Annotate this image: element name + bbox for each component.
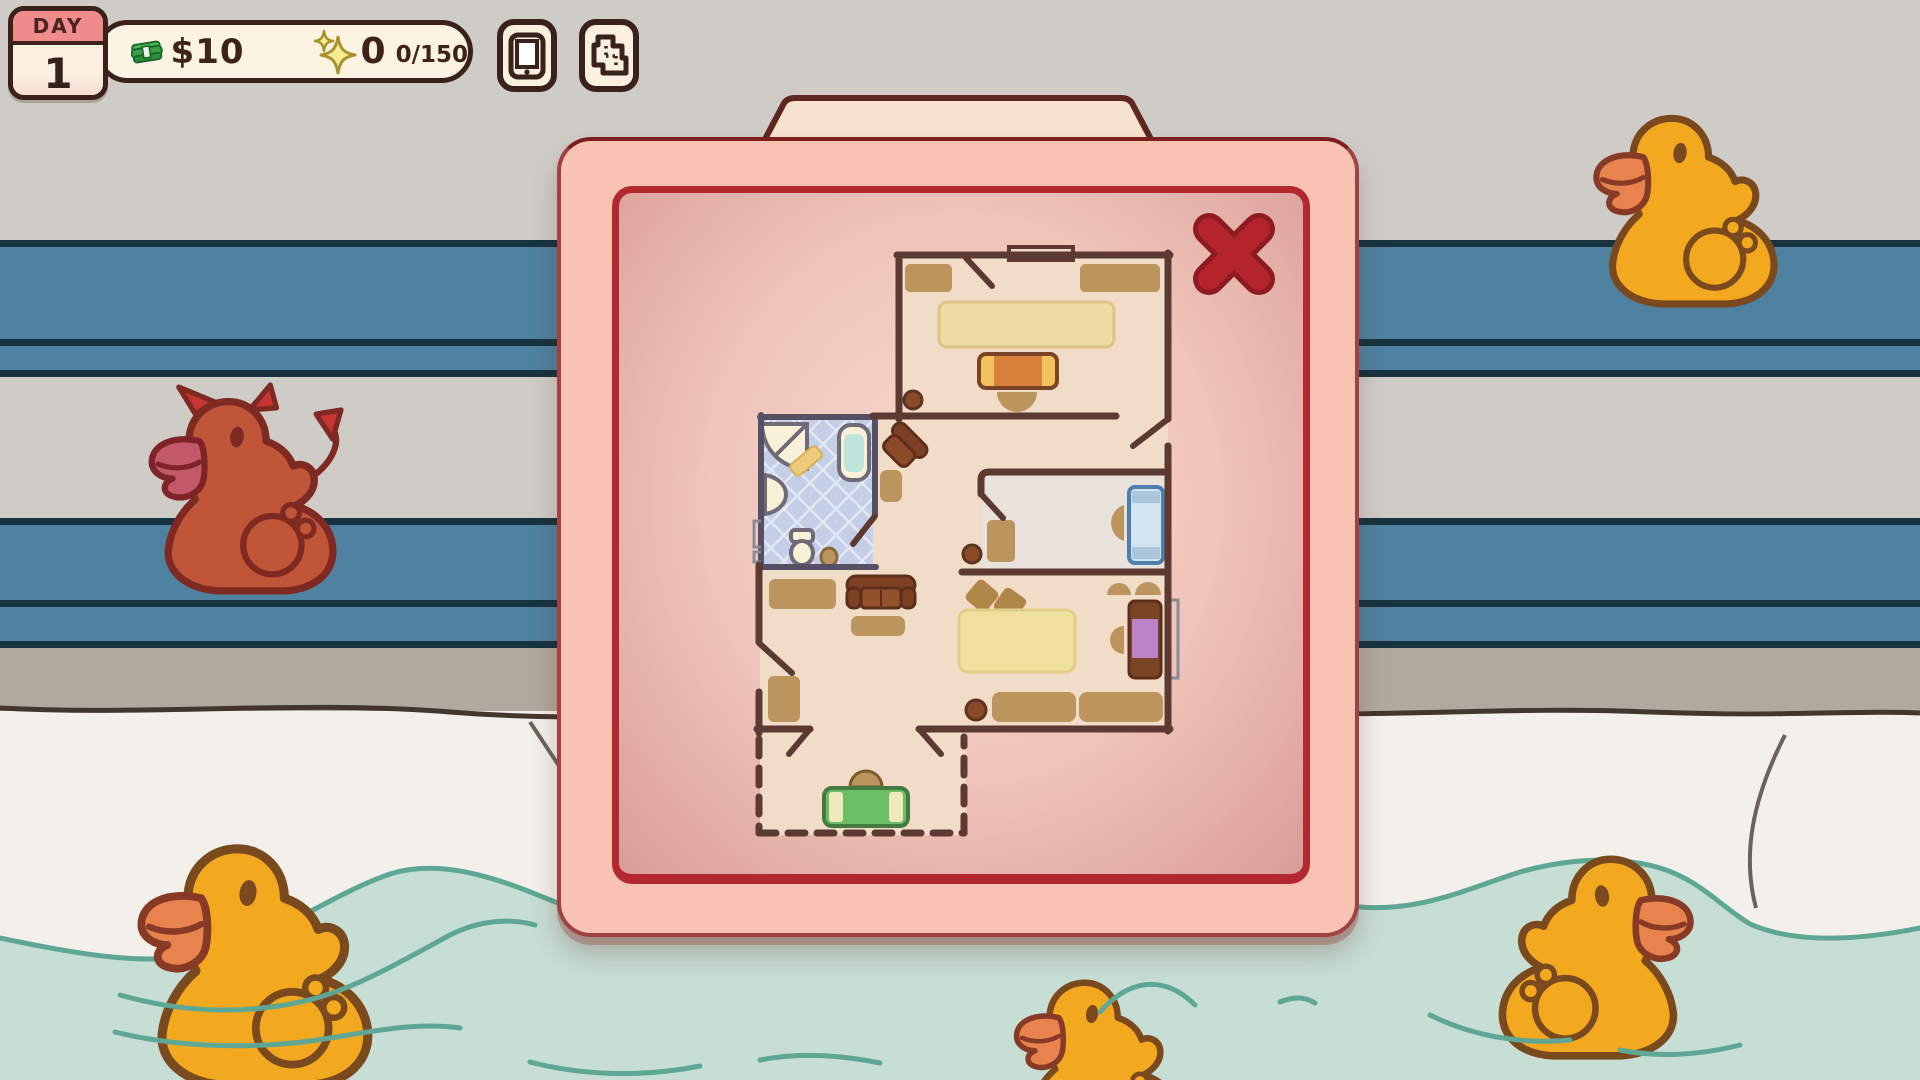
floorplan-button[interactable] <box>579 19 639 92</box>
rug <box>959 610 1075 672</box>
money-value: $10 <box>171 32 245 72</box>
close-x-icon <box>1191 211 1277 297</box>
floorplan-map <box>752 240 1180 854</box>
kitchen-counter <box>769 579 836 609</box>
sparkle-count: 0 <box>361 31 386 72</box>
sofa-bench <box>1079 692 1163 722</box>
stats-bar: $10 0 0/150 <box>96 20 473 83</box>
close-button[interactable] <box>1191 211 1277 297</box>
map-panel <box>612 186 1310 884</box>
door-knob <box>963 545 981 563</box>
door-knob <box>904 391 922 409</box>
toilet-bowl <box>791 541 813 565</box>
coffee-table <box>851 616 905 636</box>
tablet-icon <box>508 32 546 80</box>
day-badge: DAY 1 <box>8 6 108 100</box>
hall-dresser <box>768 676 800 722</box>
day-label: DAY <box>13 11 103 45</box>
floorplan-icon <box>589 33 629 79</box>
hud: $10 0 0/150 DAY 1 <box>0 0 1920 110</box>
door-knob <box>966 700 986 720</box>
modal-frame <box>557 137 1359 937</box>
sparkle-progress: 0/150 <box>396 42 468 68</box>
game-screen: $10 0 0/150 DAY 1 <box>0 0 1920 1080</box>
cash-icon <box>131 31 163 73</box>
day-value: 1 <box>13 45 103 100</box>
dresser <box>987 520 1015 562</box>
bed <box>939 302 1114 347</box>
bath-stool <box>821 548 837 566</box>
floorplan-modal <box>557 95 1359 937</box>
sofa-bench <box>992 692 1076 722</box>
ottoman <box>880 470 902 502</box>
tablet-button[interactable] <box>497 19 557 92</box>
sparkle-icon <box>311 29 357 75</box>
